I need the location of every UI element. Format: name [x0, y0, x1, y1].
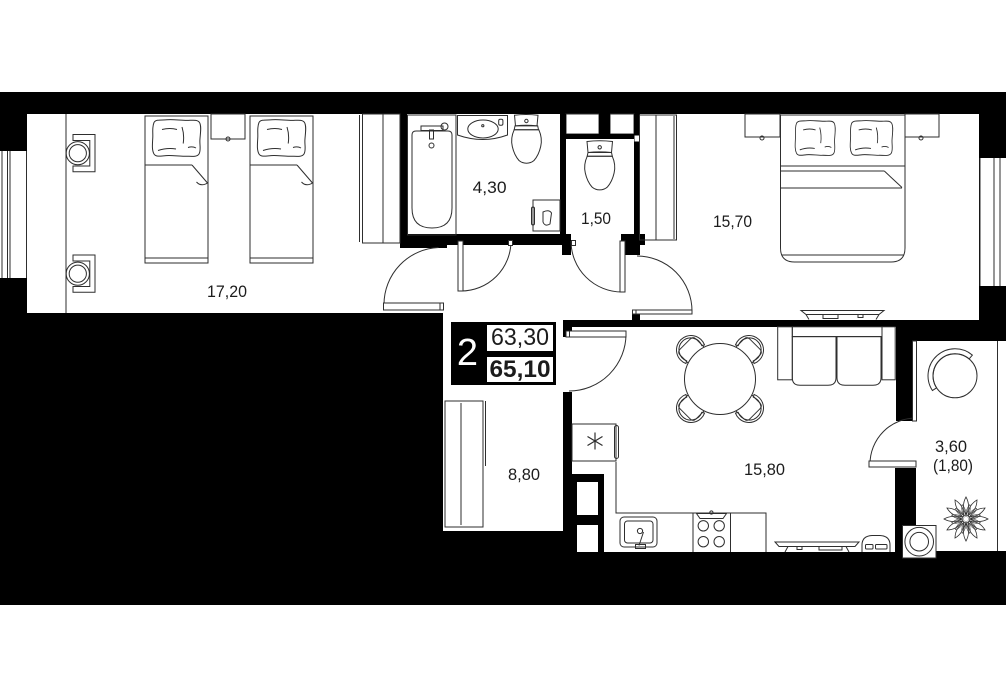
svg-text:1,50: 1,50: [581, 209, 611, 228]
svg-text:63,30: 63,30: [491, 324, 549, 351]
svg-text:2: 2: [457, 332, 478, 374]
svg-text:4,30: 4,30: [473, 178, 507, 197]
svg-text:17,20: 17,20: [207, 282, 247, 301]
svg-text:3,60: 3,60: [935, 437, 967, 456]
svg-text:15,70: 15,70: [713, 212, 752, 231]
svg-text:8,80: 8,80: [508, 465, 540, 484]
svg-text:65,10: 65,10: [490, 356, 551, 383]
svg-text:(1,80): (1,80): [933, 456, 973, 475]
svg-text:15,80: 15,80: [744, 460, 785, 479]
